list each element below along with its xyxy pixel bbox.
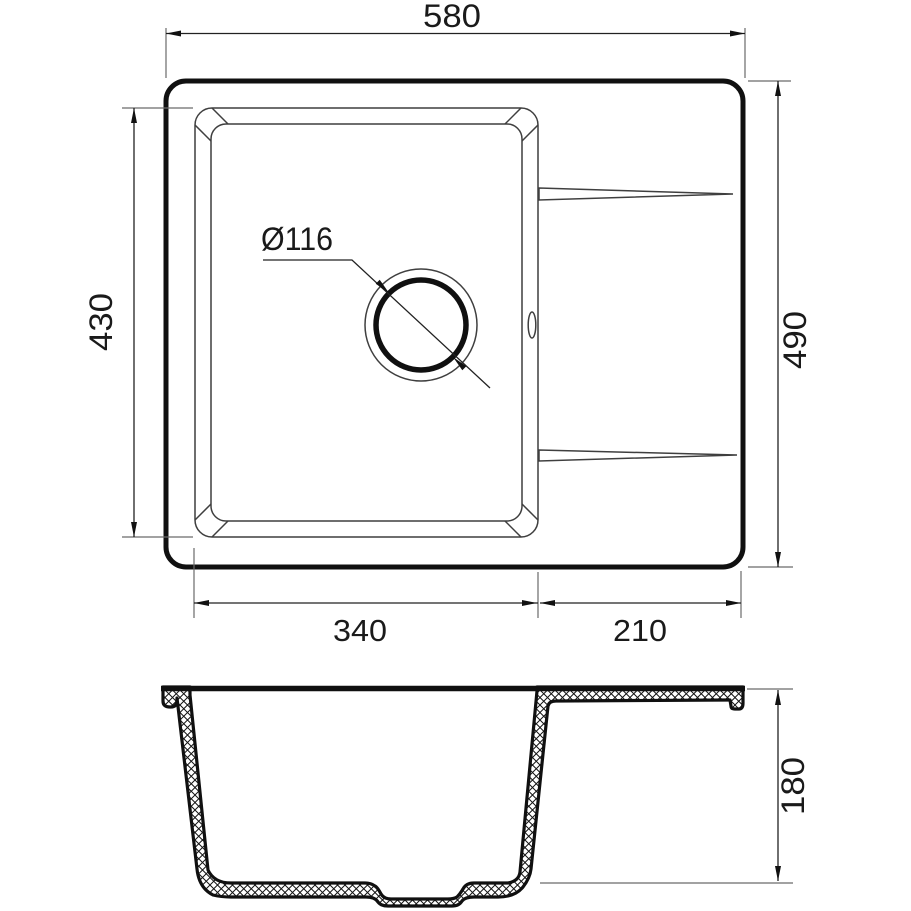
arrowhead (775, 866, 781, 881)
arrowhead (775, 690, 781, 705)
dim-bowl-width: 340 (194, 548, 538, 648)
leader-arrowhead (376, 280, 389, 293)
arrowhead (194, 600, 209, 606)
overflow-slot (528, 312, 536, 338)
sink-technical-drawing: Ø116 580 430 490 (0, 0, 911, 911)
extension-line (194, 548, 538, 618)
arrowhead (726, 600, 741, 606)
drainboard-groove-top (539, 188, 733, 200)
dim-label-bowl-length: 430 (83, 293, 119, 351)
dim-label-overall-width: 580 (423, 0, 481, 34)
dim-label-overall-depth: 490 (777, 311, 813, 369)
drain-diameter-label: Ø116 (261, 221, 333, 257)
dim-bowl-length: 430 (83, 108, 193, 537)
extension-line (540, 689, 793, 883)
dim-label-height: 180 (775, 757, 811, 815)
arrowhead (522, 600, 537, 606)
drain-hole-circle (376, 280, 466, 370)
arrowhead (166, 31, 181, 37)
dim-label-drainboard-width: 210 (613, 613, 667, 648)
dim-height: 180 (540, 689, 811, 883)
dim-overall-width: 580 (166, 0, 745, 78)
arrowhead (775, 552, 781, 567)
top-view: Ø116 580 430 490 (83, 0, 813, 648)
arrowhead (131, 522, 137, 537)
bowl-corner-miters (195, 108, 538, 537)
sink-outline (166, 81, 743, 567)
extension-line (166, 28, 745, 78)
arrowhead (540, 600, 555, 606)
dim-label-bowl-width: 340 (333, 613, 387, 648)
arrowhead (730, 31, 745, 37)
bowl-rim-outer (195, 108, 538, 537)
dim-overall-depth: 490 (748, 81, 813, 567)
arrowhead (775, 81, 781, 96)
drainboard-groove-bottom (539, 450, 737, 461)
drain-diameter-callout: Ø116 (261, 221, 490, 388)
arrowhead (131, 108, 137, 123)
section-view: 180 (161, 687, 811, 906)
bowl-rim-inner (211, 124, 522, 521)
extension-line (122, 108, 193, 537)
section-material (163, 687, 743, 906)
dim-drainboard-width: 210 (540, 571, 741, 648)
